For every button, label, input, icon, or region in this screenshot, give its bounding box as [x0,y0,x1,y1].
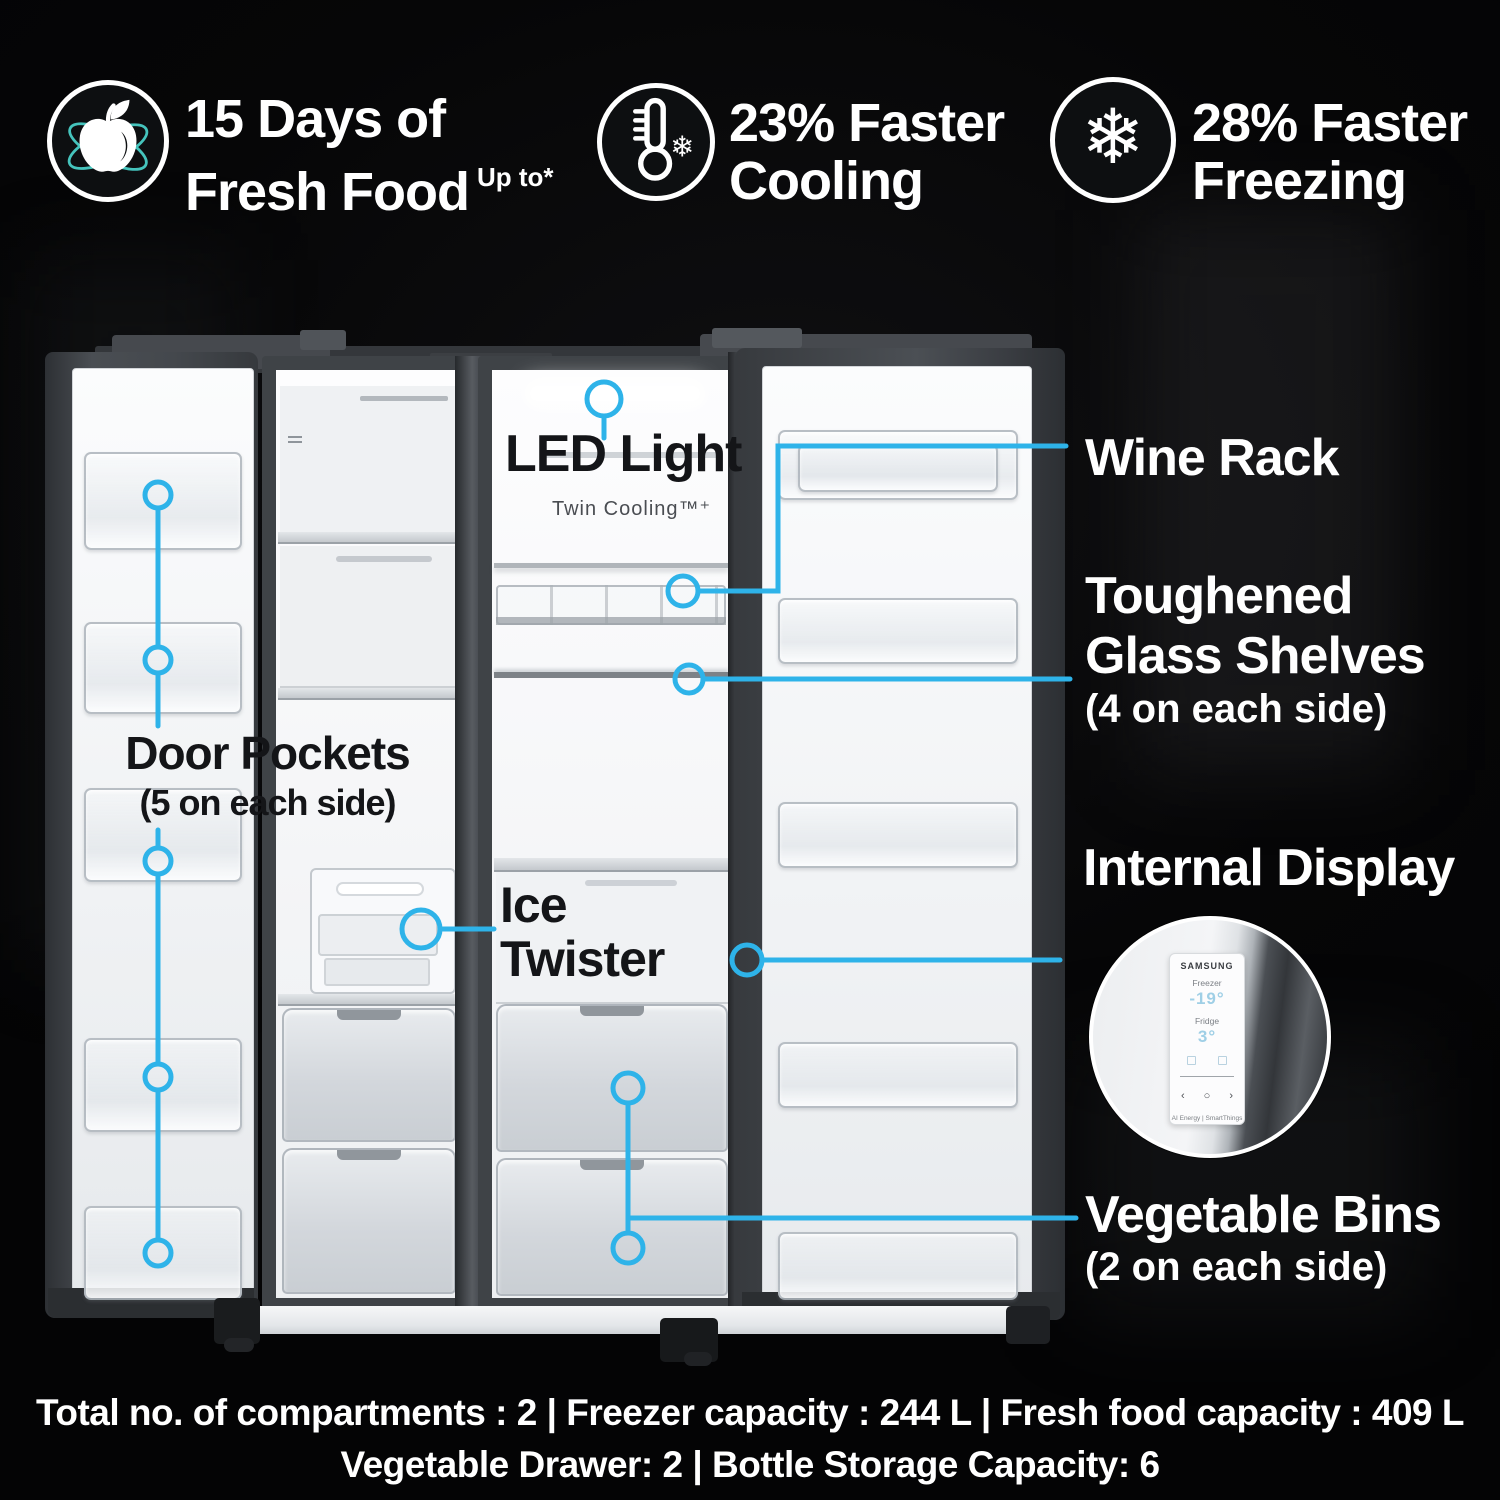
vegetable-bin-line [628,1104,1076,1232]
door-pocket-dot [145,1064,171,1090]
ice-twister-line2: Twister [500,932,664,986]
glass-shelves-note: (4 on each side) [1085,686,1425,732]
mode-icon [1187,1056,1196,1065]
display-divider [1180,1076,1234,1077]
glass-shelves-line2: Glass Shelves [1085,626,1425,686]
glass-shelf-dot [675,665,703,693]
vegetable-bins-title: Vegetable Bins [1085,1186,1441,1244]
vegetable-bin-dot [613,1073,643,1103]
ice-twister-line1: Ice [500,878,664,932]
samsung-fridge-infographic: 15 Days of Fresh FoodUp to* ❄ 23% Faster… [0,0,1500,1500]
freezer-label: Freezer [1192,978,1221,988]
led-light-label: LED Light [505,424,742,484]
display-footer: AI Energy | SmartThings [1172,1115,1243,1122]
samsung-logo: SAMSUNG [1180,961,1233,971]
door-pocket-dot [145,1240,171,1266]
door-pockets-note: (5 on each side) [95,778,440,828]
vegetable-bin-dot [613,1233,643,1263]
door-pocket-dot [145,647,171,673]
fridge-label: Fridge [1195,1016,1219,1026]
ice-twister-label: Ice Twister [500,878,664,986]
fridge-temp: 3° [1198,1027,1216,1047]
door-pocket-dot [145,482,171,508]
door-pockets-title: Door Pockets [95,728,440,778]
wine-rack-line [699,446,1066,591]
led-light-dot [587,382,621,416]
freezer-temp: -19° [1189,989,1224,1009]
display-controls: ‹ ○ › [1173,1090,1241,1102]
wine-rack-label: Wine Rack [1085,428,1339,488]
glass-shelves-label: Toughened Glass Shelves (4 on each side) [1085,566,1425,732]
internal-display-label: Internal Display [1083,838,1454,898]
display-panel: SAMSUNG Freezer -19° Fridge 3° ‹ ○ › AI … [1169,953,1245,1125]
display-mode-icons [1187,1056,1227,1065]
door-pockets-label: Door Pockets (5 on each side) [95,728,440,828]
internal-display-inset: SAMSUNG Freezer -19° Fridge 3° ‹ ○ › AI … [1089,916,1331,1158]
twin-cooling-label: Twin Cooling™⁺ [552,496,711,521]
door-pocket-dot [145,848,171,874]
mode-icon [1218,1056,1227,1065]
vegetable-bins-label: Vegetable Bins (2 on each side) [1085,1186,1441,1290]
wine-rack-dot [668,576,698,606]
internal-display-dot [732,945,762,975]
ice-twister-dot [402,910,440,948]
glass-shelves-line1: Toughened [1085,566,1425,626]
vegetable-bins-note: (2 on each side) [1085,1244,1441,1290]
